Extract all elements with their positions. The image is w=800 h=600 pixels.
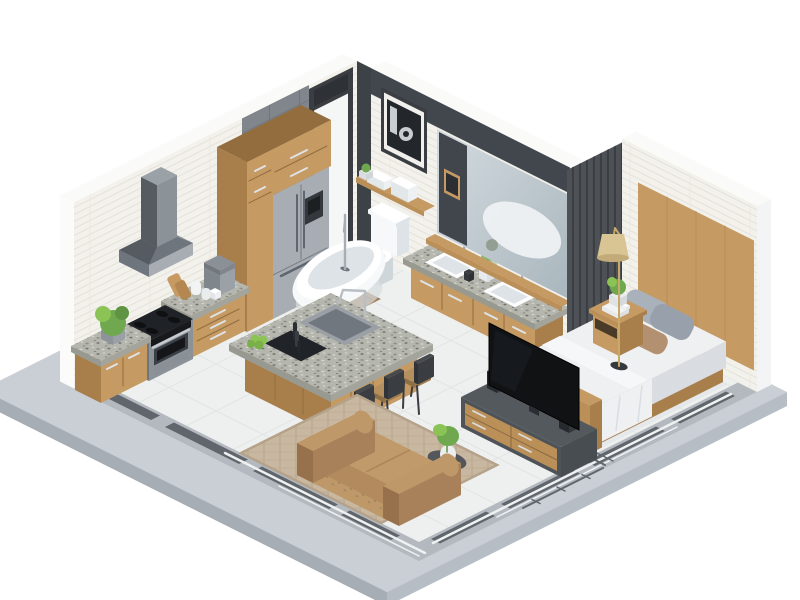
bedroom-wall-endcap — [757, 199, 771, 392]
counter-plant-3 — [115, 306, 129, 320]
art-flower-center — [403, 131, 409, 137]
canister-1 — [191, 281, 201, 295]
pantry-cabinet-right-face — [247, 149, 273, 332]
canister-2 — [202, 288, 211, 300]
mirror-reflection-plant — [486, 239, 498, 251]
counter-plant-2 — [95, 306, 111, 322]
shower-corridor-gap — [357, 61, 371, 254]
stool-2-back-front-face — [384, 377, 388, 400]
stool-1-back-front-face — [414, 362, 418, 385]
isometric-scene — [0, 0, 800, 600]
apartment-floorplan-illustration — [0, 0, 800, 600]
art-figure — [390, 106, 397, 136]
left-wall-endcap — [60, 196, 74, 389]
table-plant-2 — [433, 424, 447, 436]
island-apple-4 — [247, 340, 255, 348]
island-apple-3 — [255, 341, 264, 350]
range-hood-chimney-front-face — [141, 177, 157, 247]
bathtub-faucet — [344, 215, 345, 269]
range-hood-chimney-right-face — [157, 175, 177, 247]
floor-lamp-shade-bottom — [597, 254, 629, 262]
shelf-succulent — [362, 164, 371, 173]
nightstand-plant-2 — [607, 277, 617, 287]
toilet-tank-right-face — [397, 221, 409, 257]
